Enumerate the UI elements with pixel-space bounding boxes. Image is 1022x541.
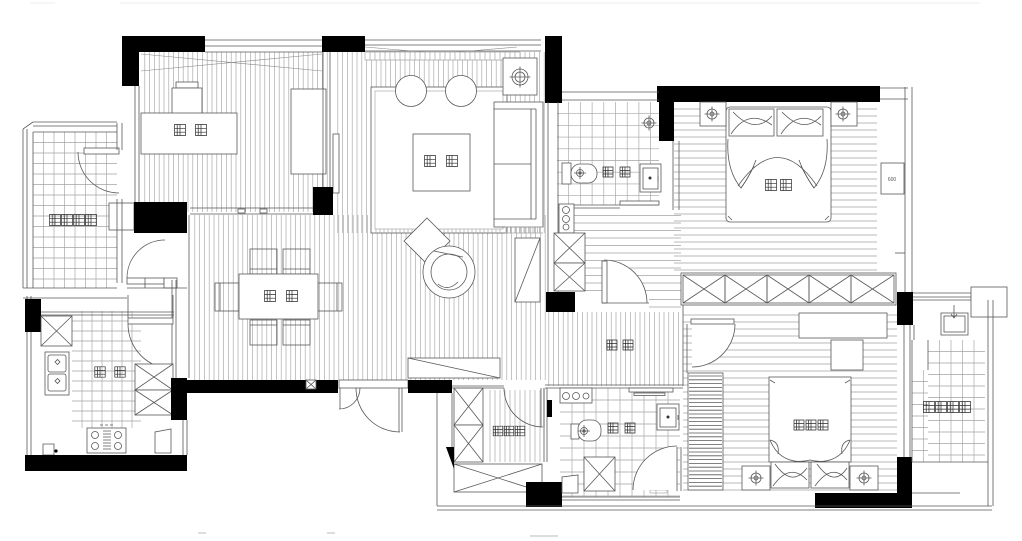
svg-text:600: 600 [888,177,897,183]
